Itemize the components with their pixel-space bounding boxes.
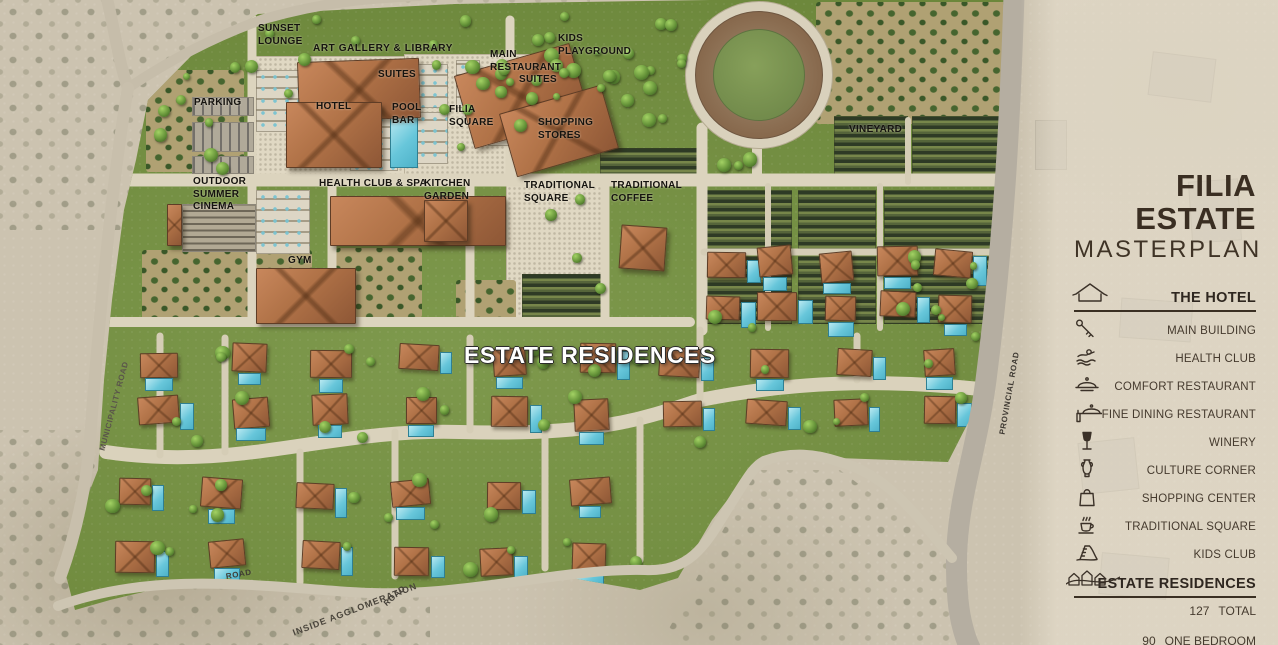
residence-pool [145,378,173,391]
parking-rows [192,122,254,152]
residence-house [574,398,610,432]
tree [642,113,656,127]
residence-house [312,393,349,425]
residence-pool [788,407,801,430]
tree [484,507,499,522]
residence-pool [701,357,715,382]
tree [211,508,224,521]
tree [465,60,480,75]
tree [988,345,998,355]
masterplan-canvas: SUNSET LOUNGE ART GALLERY & LIBRARY PARK… [0,0,1278,645]
tree [357,432,368,443]
residence-pool [957,403,972,427]
legend-item-comfort-restaurant: COMFORT RESTAURANT [1074,380,1256,393]
residence-house [115,541,155,573]
residence-house [757,244,793,277]
residence-house [837,348,873,377]
tree [572,253,581,262]
tree [761,365,769,373]
residence-house [406,397,437,424]
legend-item-winery: WINERY [1074,436,1256,449]
tree [141,485,152,496]
residence-pool [236,428,266,441]
tree [348,492,359,503]
tree [514,119,527,132]
health-club-building [330,196,506,246]
tree [966,278,978,290]
residence-house [492,347,527,377]
residence-pool [873,357,886,380]
house-icon [1072,280,1108,309]
traditional-coffee-building [619,224,668,271]
tree [191,435,202,446]
tree [205,118,214,127]
tree [938,314,945,321]
tree [189,505,196,512]
tree [545,209,556,220]
tree [526,92,539,105]
residence-house [394,547,430,576]
tree [495,86,506,97]
residence-pool [152,485,164,511]
stat-one-bedroom: 90 ONE BEDROOM [1074,634,1256,645]
residence-house [745,399,788,427]
tree [743,152,757,166]
legend-sidebar: FILIA ESTATE MASTERPLAN THE HOTEL MAIN B… [1074,0,1256,645]
kitchen-garden-building [424,200,468,242]
tree [593,47,601,55]
wine-glass-icon [1074,429,1098,456]
hotel-header-label: THE HOTEL [1171,290,1256,306]
tree [215,479,226,490]
residence-pool [703,408,716,431]
hotel-legend-section: THE HOTEL MAIN BUILDING HEALTH CLUB COMF… [1074,290,1256,561]
residence-house [295,482,334,510]
residences-header-label: ESTATE RESIDENCES [1098,576,1256,592]
tree [643,81,657,95]
tree [235,391,249,405]
hotel-legend-header: THE HOTEL [1074,290,1256,312]
residence-house [819,250,855,283]
tree [498,64,509,75]
residence-pool [756,379,784,391]
residence-house [658,347,700,378]
tree [462,104,473,115]
tree [430,520,439,529]
residence-pool [408,425,434,437]
houses-cluster-icon [1066,568,1120,595]
residence-pool [926,377,953,390]
amphora-icon [1074,457,1098,484]
slide-icon [1074,541,1100,568]
tree [429,40,438,49]
tree [319,421,331,433]
tree [150,541,164,555]
cinema-screen [167,204,182,246]
tree [803,420,817,434]
stat-total: 127 TOTAL [1074,604,1256,618]
coffee-cup-icon [1074,513,1098,540]
tree [230,62,241,73]
tree [176,95,186,105]
residence-pool [180,403,194,430]
residence-pool [884,277,911,289]
tree [911,260,921,270]
tree [476,77,490,91]
residence-pool [763,277,788,291]
tree [343,542,351,550]
tree [216,352,226,362]
tree [416,387,430,401]
residence-house [140,352,179,377]
residence-pool [396,507,424,520]
legend-item-shopping-center: SHOPPING CENTER [1074,492,1256,505]
residence-pool [823,283,852,294]
residences-legend-section: ESTATE RESIDENCES 127 TOTAL 90 ONE BEDRO… [1074,576,1256,645]
residence-pool [579,432,604,446]
legend-item-kids-club: KIDS CLUB [1074,548,1256,561]
parking-rows [192,97,254,116]
tree [597,84,605,92]
tree [384,513,393,522]
legend-item-health-club: HEALTH CLUB [1074,352,1256,365]
tree [204,148,218,162]
residence-pool [522,490,536,513]
tree [165,547,174,556]
residence-pool [798,300,813,324]
residence-house [662,401,701,427]
suites-units [416,112,448,164]
tree [955,392,967,404]
tree [544,32,555,43]
residence-pool [617,351,630,381]
estate-title: FILIA ESTATE [1074,170,1256,235]
tree [460,15,472,27]
cloche-icon [1074,373,1100,400]
tree [621,94,634,107]
tree [860,393,869,402]
residence-house [301,540,340,570]
tree [105,499,119,513]
legend-item-fine-dining: FINE DINING RESTAURANT [1074,408,1256,421]
masterplan-subtitle: MASTERPLAN [1074,236,1256,264]
legend-item-traditional-square: TRADITIONAL SQUARE [1074,520,1256,533]
residence-house [569,477,612,507]
tree [507,546,515,554]
suites-units [416,64,448,108]
legend-item-main-building: MAIN BUILDING [1074,324,1256,337]
outdoor-cinema-seats [182,204,256,252]
hotel-building [286,102,382,168]
residence-house [924,395,957,423]
tree [154,128,167,141]
tree [537,356,550,369]
residence-pool [869,407,880,433]
residence-house [572,542,607,572]
residence-house [310,350,352,378]
residence-pool [828,322,854,336]
tree [412,473,426,487]
residence-pool [514,556,529,579]
suites-units [256,190,310,254]
label-provincial-road: PROVINCIAL ROAD [998,351,1021,435]
residence-house [486,482,521,510]
roundabout [685,1,833,149]
residence-house [757,292,797,321]
tree [970,262,977,269]
tree [658,114,667,123]
tree [568,390,582,404]
swimmer-icon [1074,345,1100,372]
residence-pool [335,488,347,518]
residence-house [491,396,529,428]
tree [312,15,320,23]
residence-pool [574,573,603,588]
residence-pool [496,377,523,388]
residence-house [398,343,439,371]
residence-house [825,296,857,322]
residence-pool [917,297,930,323]
residence-house [933,248,973,278]
tree [924,359,933,368]
roundabout-lawn [713,29,805,121]
residence-house [750,349,790,378]
residences-legend-header: ESTATE RESIDENCES [1074,576,1256,598]
tree [183,73,190,80]
residence-pool [579,506,601,518]
residence-house [707,252,746,279]
legend-item-culture-corner: CULTURE CORNER [1074,464,1256,477]
key-icon [1074,317,1098,344]
residence-pool [319,379,343,392]
gym-building [256,268,356,324]
tree [563,538,571,546]
residence-pool [238,373,262,385]
tree [284,89,293,98]
fine-dining-icon [1074,401,1102,428]
shopping-bag-icon [1074,485,1098,512]
tree [351,36,360,45]
residence-pool [440,352,451,374]
pool-bar-pool [390,116,418,168]
residence-pool [944,324,967,336]
tree [245,60,258,73]
residence-pool [341,547,353,576]
residence-pool [431,556,445,579]
tree [575,194,585,204]
residence-house [208,538,247,569]
tree [748,323,757,332]
residence-house [232,342,268,373]
